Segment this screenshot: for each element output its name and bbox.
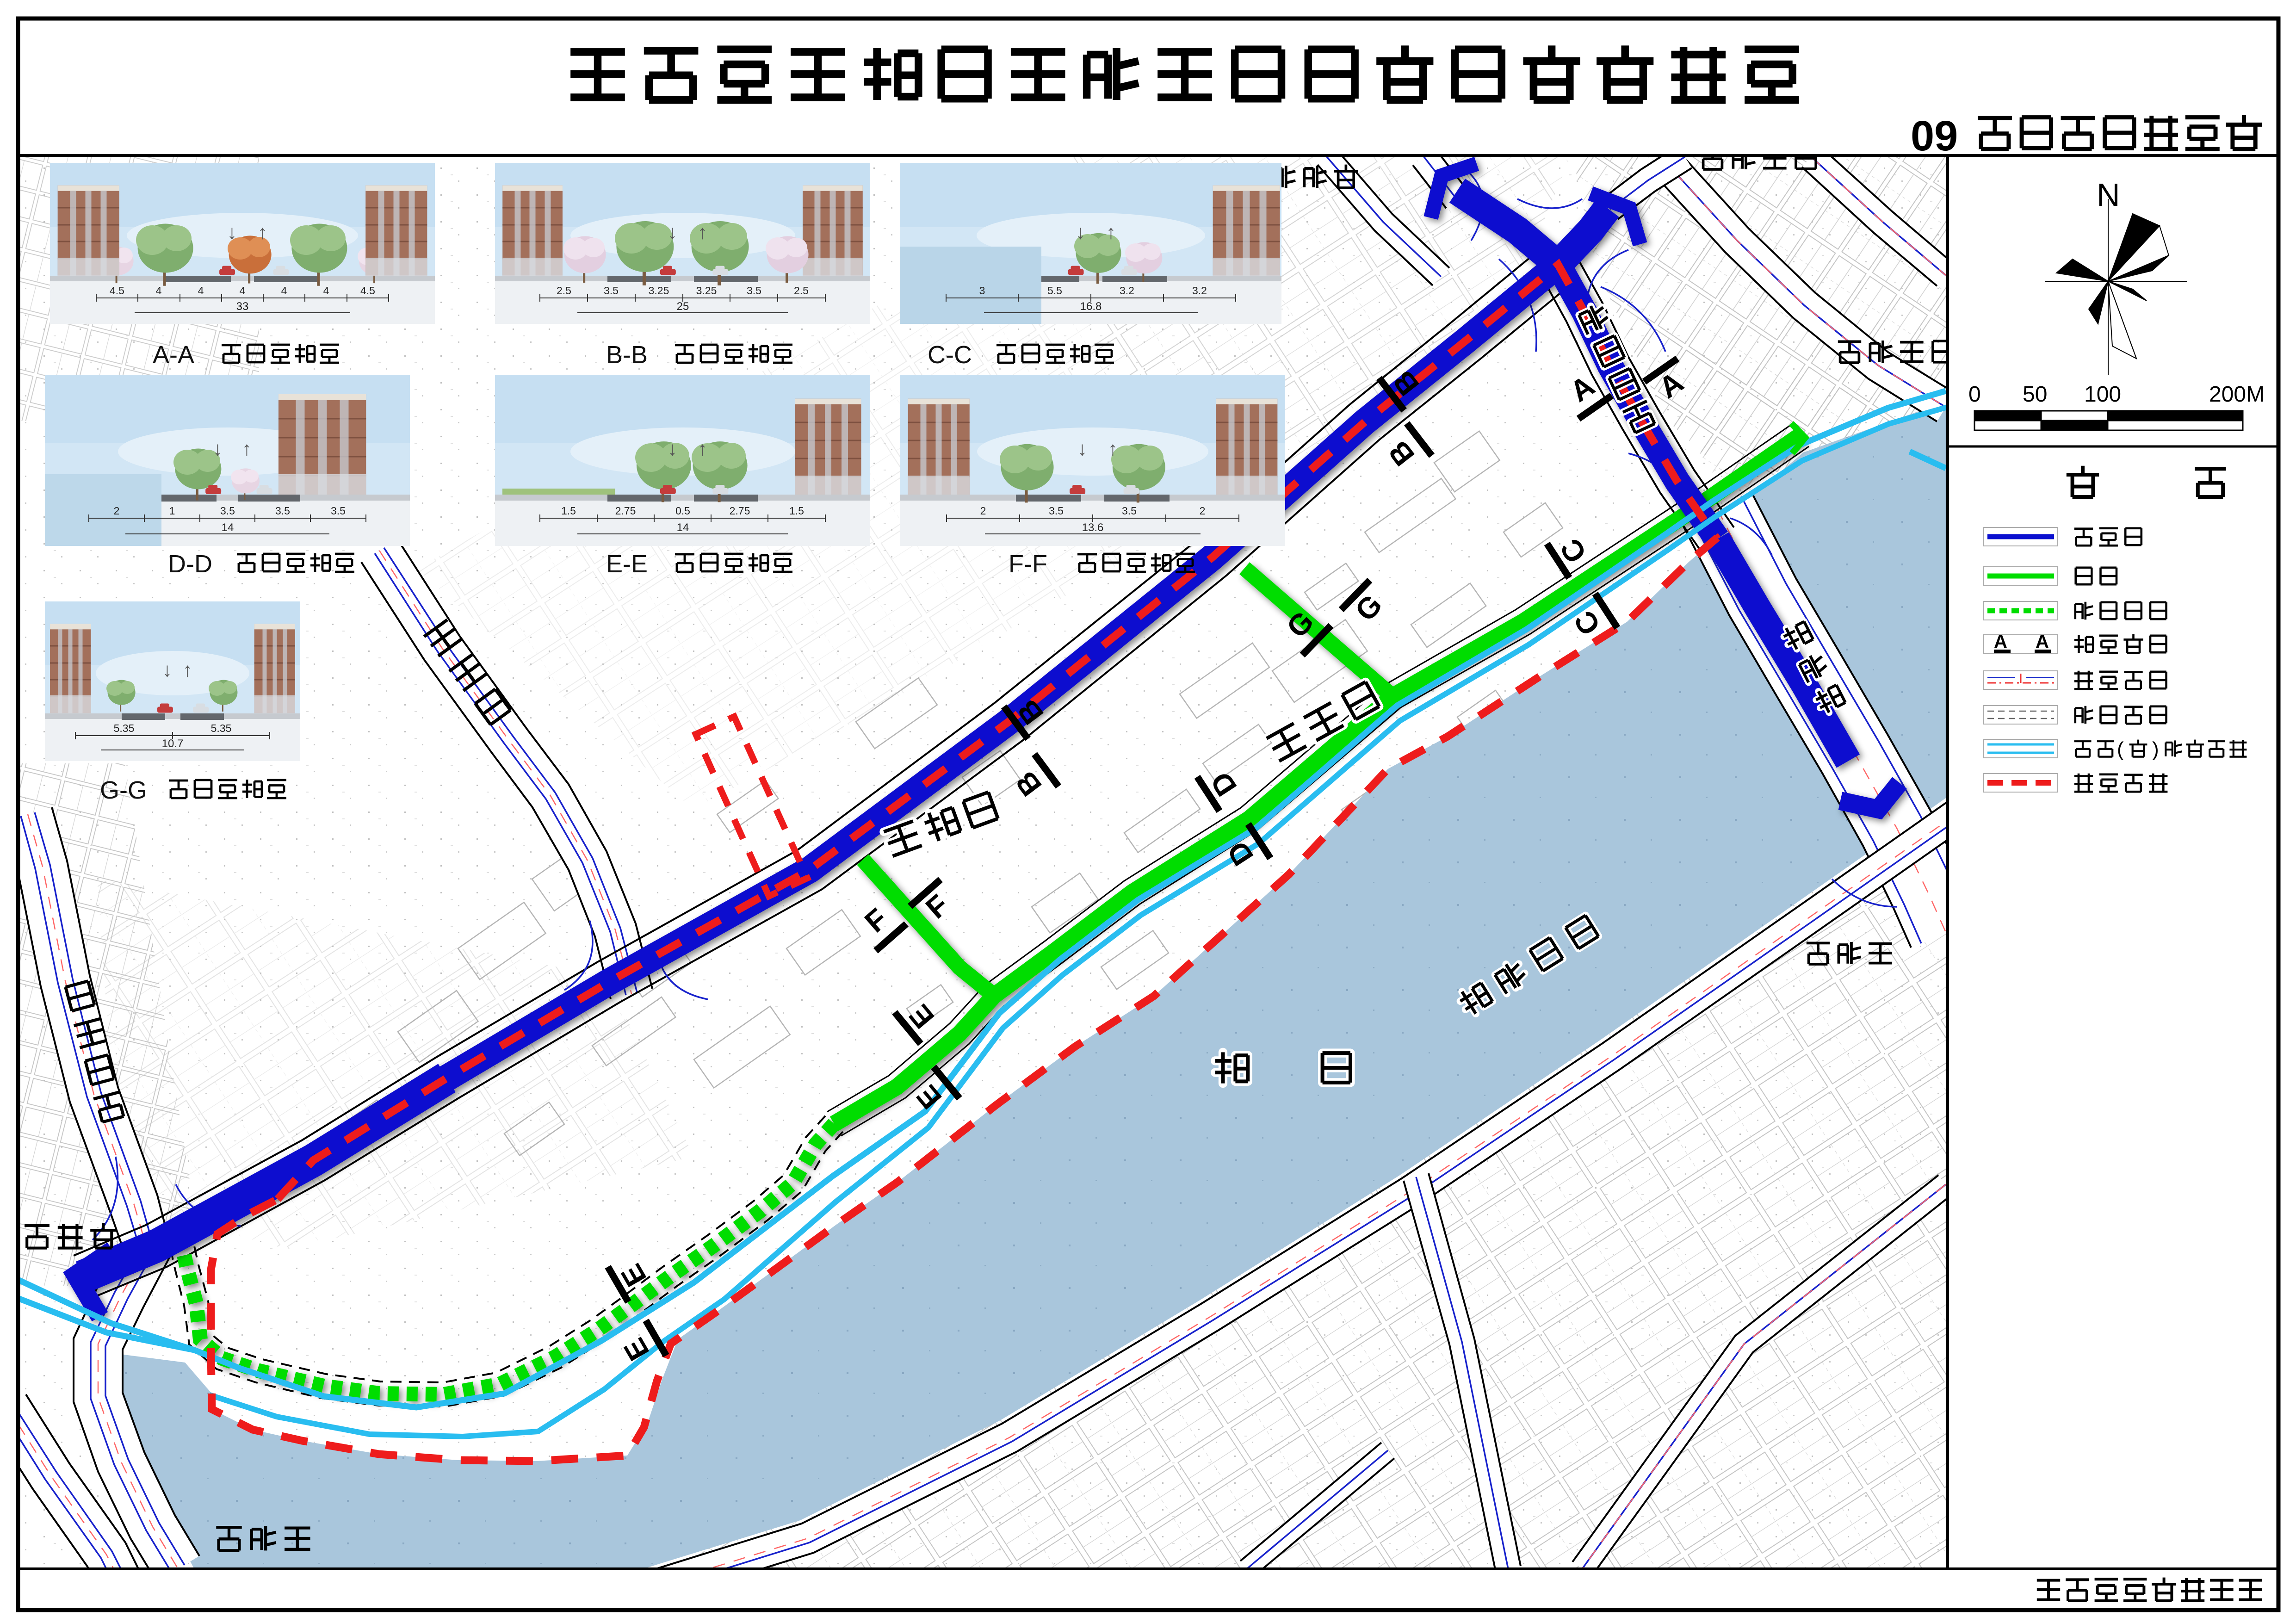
svg-text:10.7: 10.7 xyxy=(162,737,184,750)
svg-text:2: 2 xyxy=(114,505,120,517)
svg-text:↑: ↑ xyxy=(698,438,707,459)
svg-text:0: 0 xyxy=(1968,382,1981,407)
svg-text:16.8: 16.8 xyxy=(1080,300,1102,313)
svg-text:2.75: 2.75 xyxy=(615,505,636,517)
svg-text:4.5: 4.5 xyxy=(110,285,124,297)
svg-text:E-E: E-E xyxy=(606,550,648,578)
svg-text:↑: ↑ xyxy=(242,438,252,459)
svg-text:2.75: 2.75 xyxy=(730,505,750,517)
svg-text:3.5: 3.5 xyxy=(220,505,235,517)
svg-text:↑: ↑ xyxy=(1106,221,1116,243)
svg-text:1.5: 1.5 xyxy=(561,505,576,517)
svg-text:3.5: 3.5 xyxy=(331,505,346,517)
svg-text:2.5: 2.5 xyxy=(557,285,571,297)
svg-text:↑: ↑ xyxy=(183,659,192,681)
svg-text:1: 1 xyxy=(169,505,175,517)
svg-text:5.35: 5.35 xyxy=(114,722,135,734)
svg-text:↓: ↓ xyxy=(213,438,223,459)
svg-text:33: 33 xyxy=(236,300,249,313)
svg-text:↓: ↓ xyxy=(668,438,677,459)
svg-text:↓: ↓ xyxy=(227,221,237,243)
svg-text:5.35: 5.35 xyxy=(211,722,232,734)
svg-text:3.5: 3.5 xyxy=(1122,505,1137,517)
svg-text:14: 14 xyxy=(222,521,234,534)
svg-text:13.6: 13.6 xyxy=(1082,521,1104,534)
svg-text:↑: ↑ xyxy=(258,221,267,243)
svg-text:5.5: 5.5 xyxy=(1047,285,1062,297)
svg-text:C-C: C-C xyxy=(928,341,972,369)
svg-text:4: 4 xyxy=(240,285,246,297)
svg-text:3.25: 3.25 xyxy=(696,285,717,297)
svg-text:25: 25 xyxy=(677,300,689,313)
svg-text:↓: ↓ xyxy=(668,221,677,243)
svg-text:3.5: 3.5 xyxy=(604,285,619,297)
svg-text:(: ( xyxy=(2117,738,2124,761)
svg-text:3.5: 3.5 xyxy=(747,285,761,297)
svg-text:3: 3 xyxy=(979,285,985,297)
svg-text:100: 100 xyxy=(2084,382,2121,407)
svg-text:4: 4 xyxy=(281,285,287,297)
svg-text:3.2: 3.2 xyxy=(1120,285,1134,297)
svg-text:2.5: 2.5 xyxy=(794,285,809,297)
svg-text:3.5: 3.5 xyxy=(275,505,290,517)
svg-text:F-F: F-F xyxy=(1009,550,1047,578)
svg-text:3.2: 3.2 xyxy=(1192,285,1207,297)
svg-text:↑: ↑ xyxy=(698,221,707,243)
svg-text:4: 4 xyxy=(323,285,329,297)
svg-text:↓: ↓ xyxy=(162,659,172,681)
svg-text:A-A: A-A xyxy=(153,341,194,369)
svg-text:): ) xyxy=(2152,738,2159,761)
svg-text:↑: ↑ xyxy=(1108,438,1118,459)
svg-text:D-D: D-D xyxy=(168,550,212,578)
svg-text:A: A xyxy=(1994,632,2007,652)
svg-text:4: 4 xyxy=(198,285,204,297)
svg-text:14: 14 xyxy=(677,521,689,534)
svg-text:200M: 200M xyxy=(2209,382,2265,407)
svg-text:2: 2 xyxy=(1200,505,1206,517)
svg-text:4.5: 4.5 xyxy=(360,285,375,297)
svg-text:0.5: 0.5 xyxy=(675,505,690,517)
svg-text:50: 50 xyxy=(2023,382,2047,407)
svg-text:↓: ↓ xyxy=(1077,438,1087,459)
svg-text:3.5: 3.5 xyxy=(1049,505,1064,517)
svg-text:09: 09 xyxy=(1911,112,1958,160)
svg-text:2: 2 xyxy=(980,505,986,517)
svg-text:B-B: B-B xyxy=(606,341,648,369)
svg-text:A: A xyxy=(2036,632,2049,652)
svg-text:↓: ↓ xyxy=(1076,221,1085,243)
svg-text:3.25: 3.25 xyxy=(649,285,669,297)
svg-text:4: 4 xyxy=(156,285,162,297)
svg-text:G-G: G-G xyxy=(100,776,147,804)
svg-text:1.5: 1.5 xyxy=(789,505,804,517)
